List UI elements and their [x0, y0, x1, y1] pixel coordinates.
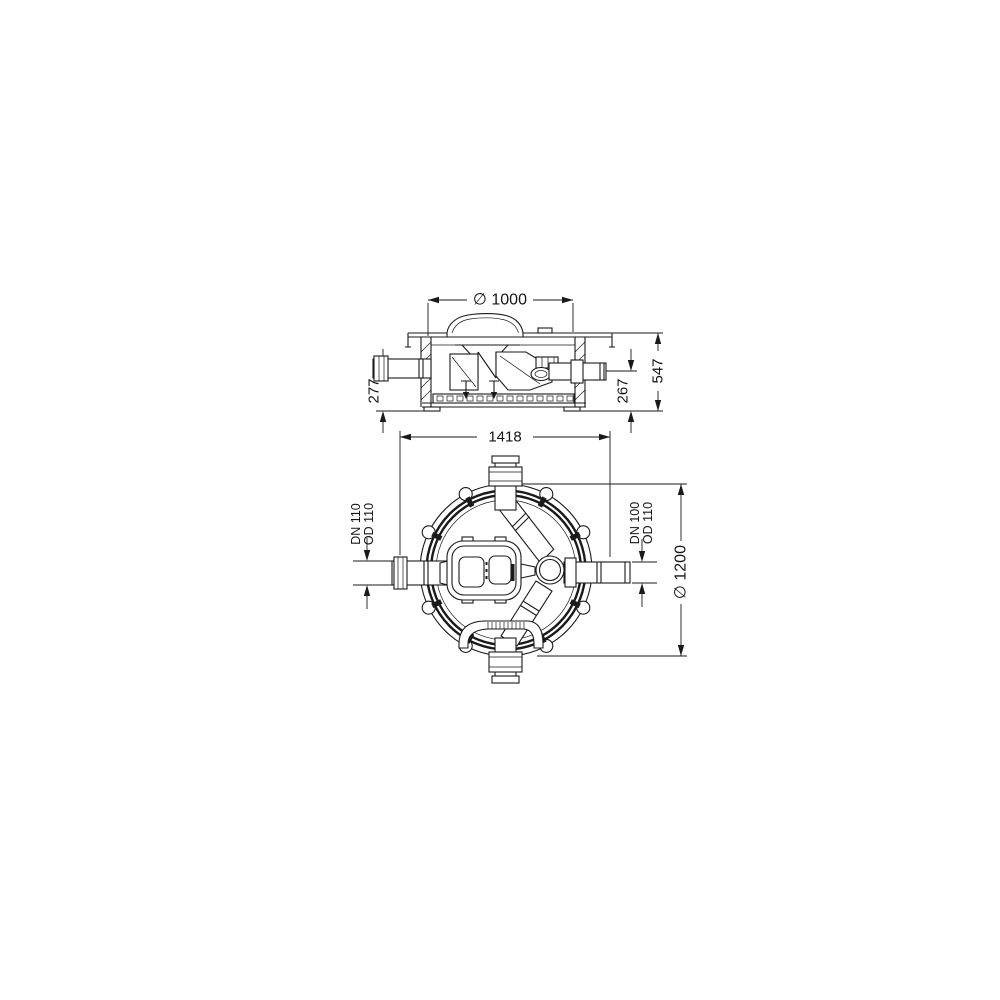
dim-left-invert-height: 277	[366, 378, 383, 403]
side-outlet-pipe	[549, 360, 606, 383]
dim-cover-diameter: ∅ 1000	[473, 292, 527, 309]
side-elevation-view: ∅ 1000 277 267 547	[366, 292, 667, 434]
outlet-port	[536, 556, 564, 584]
dim-overall-width: 1418	[488, 429, 521, 446]
dim-total-height: 547	[650, 358, 667, 383]
dim-inlet-od-label: OD 110	[362, 503, 376, 545]
dim-right-invert-height: 267	[615, 378, 632, 403]
dim-outlet-dn-label: DN 100	[628, 502, 642, 544]
dome-cover	[447, 314, 523, 337]
plan-outlet-pipe	[564, 558, 630, 587]
side-inlet-pipe	[373, 356, 431, 381]
dimension-drawing: ∅ 1000 277 267 547	[0, 0, 1000, 1000]
technical-drawing-canvas: ∅ 1000 277 267 547	[0, 0, 1000, 1000]
pump-housing	[440, 537, 535, 603]
dim-inlet-dn-label: DN 110	[349, 503, 363, 545]
dim-outlet-od-label: OD 110	[641, 502, 655, 544]
dim-chamber-diameter: ∅ 1200	[673, 545, 690, 599]
plan-view: 1418 DN 110 OD 110 DN 100 OD 110 ∅ 1200	[349, 429, 690, 684]
base-grate	[422, 394, 586, 411]
